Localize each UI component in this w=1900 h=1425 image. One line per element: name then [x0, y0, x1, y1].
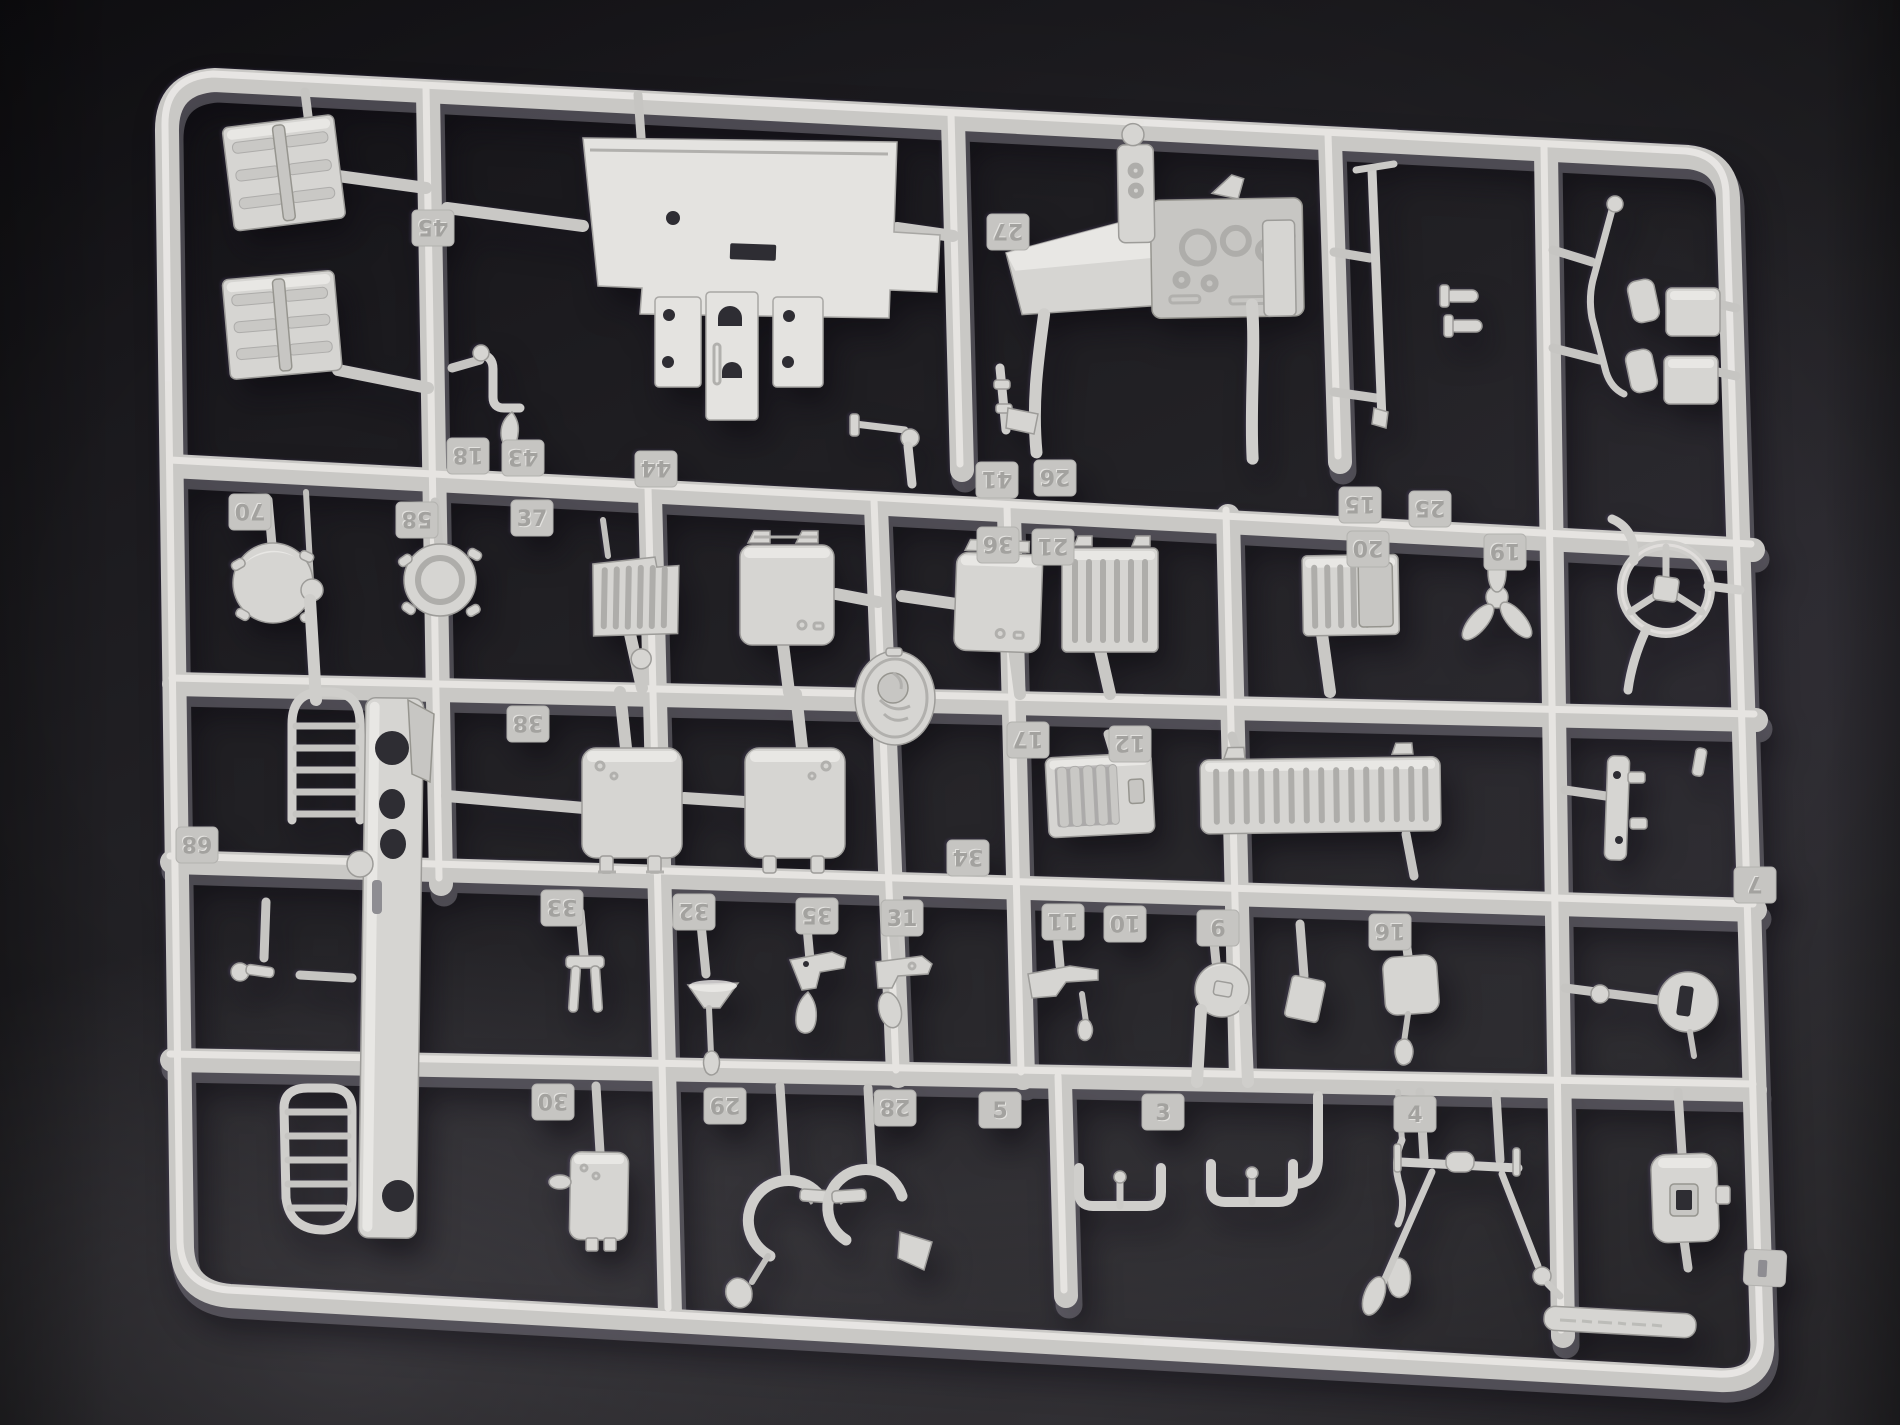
- access-plate: [1650, 1153, 1730, 1243]
- hinge-bracket: [1604, 747, 1707, 860]
- part-number-tag-16: 1616: [1369, 914, 1411, 950]
- stowage-grille-panel-2: [222, 270, 342, 379]
- latch-hook: [1028, 966, 1098, 1041]
- dashboard-cowl: [1004, 121, 1307, 463]
- svg-text:12: 12: [1115, 730, 1146, 755]
- part-number-tag-44: 4444: [635, 451, 677, 487]
- svg-text:35: 35: [802, 902, 833, 927]
- part-number-tag-31: 3131: [881, 900, 923, 936]
- part-number-tag-37: 3737: [511, 500, 553, 536]
- part-number-tag-34: 3434: [947, 840, 989, 876]
- part-number-tag-43: 4343: [502, 440, 544, 476]
- part-number-tag-5: 55: [979, 1092, 1021, 1128]
- stowage-grille-panel-1: [222, 114, 346, 231]
- svg-text:33: 33: [547, 894, 578, 919]
- wiper-arms: [1358, 1144, 1560, 1318]
- part-number-tag-68: 6868: [176, 827, 218, 863]
- svg-text:58: 58: [402, 506, 433, 531]
- u-bracket-2: [1211, 1096, 1318, 1202]
- part-number-tag-29: 2929: [704, 1088, 746, 1124]
- small-box-part: [1284, 975, 1326, 1023]
- svg-text:9: 9: [1210, 914, 1225, 939]
- control-lever: [790, 952, 846, 1033]
- slatted-vent-panel: [1200, 743, 1441, 834]
- part-number-tag-18: 1818: [447, 438, 489, 474]
- part-number-tag-58: 5858: [396, 502, 438, 538]
- svg-text:21: 21: [1038, 533, 1069, 558]
- part-number-tag-11: 1111: [1042, 904, 1084, 940]
- rear-view-mirror-1: [1626, 278, 1720, 336]
- part-number-tag-21: 2121: [1032, 529, 1074, 565]
- spring-clamp-1: [722, 1180, 837, 1311]
- svg-text:16: 16: [1375, 918, 1406, 943]
- part-number-tag-9: 99: [1197, 910, 1239, 946]
- radiator-grille-2: [1062, 536, 1158, 652]
- elbow-pipe-part: [473, 345, 520, 446]
- louver-vent-panel: [1045, 752, 1155, 837]
- svg-text:19: 19: [1490, 538, 1521, 563]
- svg-text:5: 5: [992, 1099, 1007, 1124]
- slotted-disc: [1591, 972, 1718, 1056]
- part-number-tag-12: 1212: [1109, 726, 1151, 762]
- svg-text:70: 70: [235, 498, 266, 523]
- filler-cap: [397, 544, 483, 618]
- rear-view-mirror-2: [1624, 348, 1718, 404]
- fuel-tank-1: [582, 748, 682, 873]
- part-number-tag-26: 2626: [1034, 460, 1076, 496]
- svg-text:45: 45: [418, 214, 449, 239]
- svg-text:44: 44: [641, 455, 672, 480]
- svg-text:26: 26: [1040, 464, 1071, 489]
- tow-fork: [566, 956, 604, 1012]
- svg-text:15: 15: [1345, 491, 1376, 516]
- oval-emblem: [855, 648, 935, 745]
- svg-text:31: 31: [887, 907, 918, 932]
- part-number-tag-19: 1919: [1484, 534, 1526, 570]
- svg-text:36: 36: [983, 531, 1014, 556]
- part-number-tag-15: 1515: [1339, 487, 1381, 523]
- svg-text:7: 7: [1747, 871, 1762, 896]
- part-number-tag-38: 3838: [507, 706, 549, 742]
- svg-text:68: 68: [182, 831, 213, 856]
- svg-text:37: 37: [517, 507, 548, 532]
- u-bracket-1: [1079, 1168, 1161, 1206]
- part-number-tag-33: 3333: [541, 890, 583, 926]
- part-number-tag-35: 3535: [796, 898, 838, 934]
- part-number-tag-25: 2525: [1409, 491, 1451, 527]
- model-kit-sprue: 4545272718184343444441412626363621211515…: [0, 0, 1900, 1425]
- svg-text:17: 17: [1013, 726, 1044, 751]
- svg-text:11: 11: [1048, 908, 1079, 933]
- svg-text:28: 28: [880, 1094, 911, 1119]
- svg-text:25: 25: [1415, 495, 1446, 520]
- part-number-tag-70: 7070: [229, 494, 271, 530]
- mirror-plate: [1382, 954, 1440, 1065]
- signal-pole: [1356, 164, 1394, 428]
- svg-text:30: 30: [538, 1088, 569, 1113]
- svg-text:18: 18: [453, 442, 484, 467]
- svg-text:43: 43: [508, 444, 539, 469]
- svg-text:4: 4: [1407, 1103, 1422, 1128]
- part-number-tag-17: 1717: [1007, 722, 1049, 758]
- fuel-tank-2: [745, 748, 845, 873]
- cab-floor-panel: [583, 138, 940, 318]
- part-number-tag-10: 1010: [1104, 906, 1146, 942]
- svg-text:38: 38: [513, 710, 544, 735]
- photo-stage: 4545272718184343444441412626363621211515…: [0, 0, 1900, 1425]
- svg-text:41: 41: [982, 466, 1013, 491]
- svg-text:29: 29: [710, 1092, 741, 1117]
- part-number-tag-20: 2020: [1347, 531, 1389, 567]
- svg-text:10: 10: [1110, 910, 1141, 935]
- svg-text:32: 32: [679, 898, 710, 923]
- svg-text:27: 27: [993, 218, 1024, 243]
- part-number-tag-28: 2828: [874, 1090, 916, 1126]
- part-number-tag-4: 44: [1394, 1096, 1436, 1132]
- small-flange-pins: [1440, 285, 1482, 337]
- svg-text:3: 3: [1155, 1101, 1170, 1126]
- part-number-tag-3: 33: [1142, 1094, 1184, 1130]
- part-number-tag-30: 3030: [532, 1084, 574, 1120]
- part-number-tag-45: 4545: [412, 210, 454, 246]
- engine-hatch-1: [740, 531, 834, 645]
- svg-text:34: 34: [953, 844, 984, 869]
- part-number-tag-32: 3232: [673, 894, 715, 930]
- corner-tab: [1743, 1249, 1787, 1287]
- stowage-box: [549, 1152, 629, 1251]
- small-pin-part: [231, 963, 275, 981]
- seat-blocks: [655, 292, 823, 420]
- spring-clamp-2: [828, 1170, 932, 1270]
- part-number-tag-41: 4141: [976, 462, 1018, 498]
- part-number-tag-27: 2727: [987, 214, 1029, 250]
- gear-lever-rod: [1590, 196, 1624, 394]
- part-number-tag-36: 3636: [977, 527, 1019, 563]
- part-number-tag-7: 77: [1734, 867, 1776, 903]
- svg-text:20: 20: [1353, 535, 1384, 560]
